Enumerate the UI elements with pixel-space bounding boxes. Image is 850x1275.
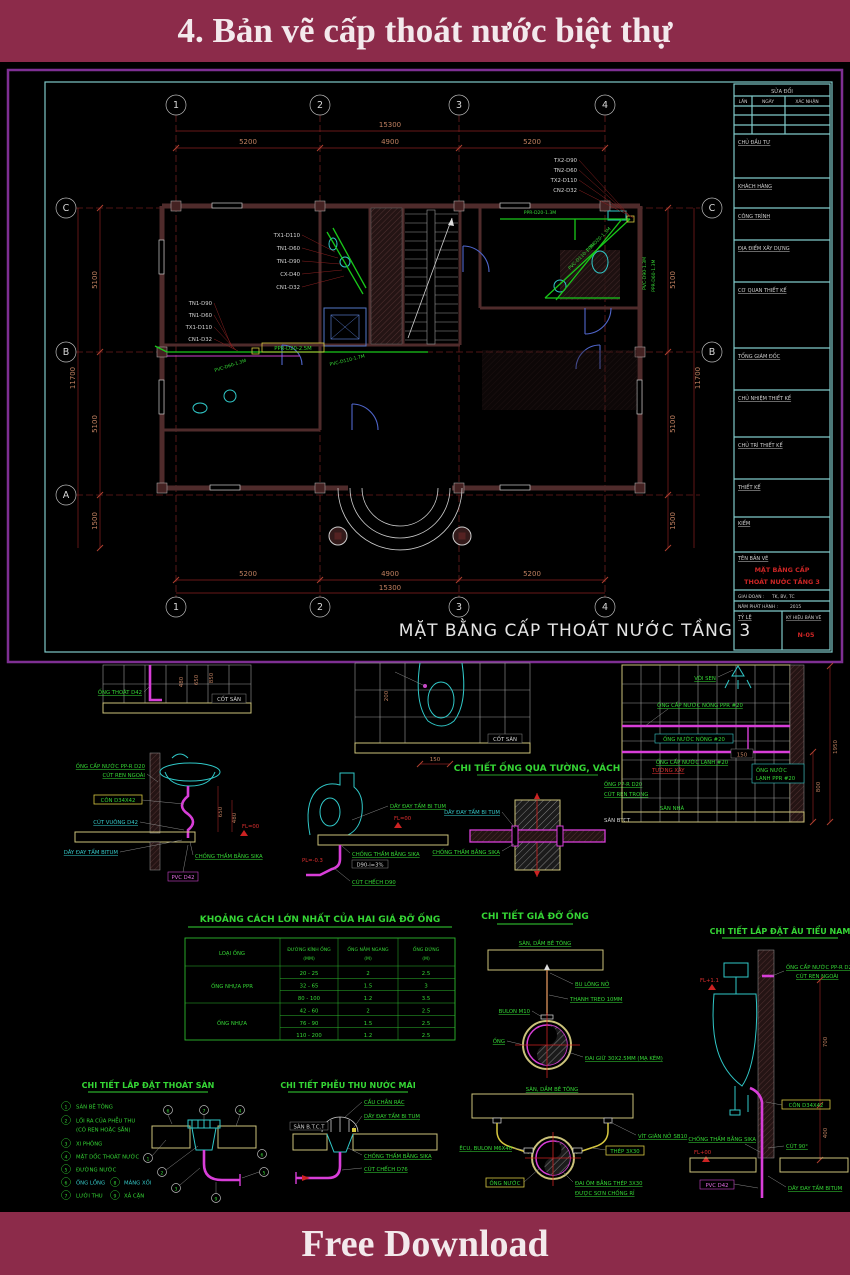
grid-label: B — [709, 347, 716, 358]
table-cell: 32 - 65 — [300, 984, 319, 990]
fitting-label: CÚT CHẾCH D76 — [364, 1165, 408, 1173]
callout-num: 9 — [215, 1197, 218, 1203]
titleblock-section: TỔNG GIÁM ĐỐC — [737, 352, 781, 360]
callout-num: 3 — [175, 1187, 178, 1193]
table-header: (MM) — [303, 956, 315, 962]
sika-label: CHỐNG THẤM BẰNG SIKA — [364, 1152, 432, 1160]
dim-label: 700 — [823, 1036, 829, 1047]
detail-title: CHI TIẾT LẮP ĐẶT ÂU TIỂU NAM — [710, 924, 850, 936]
pipe-label: CN1-D32 — [276, 285, 300, 291]
callout-num: 6 — [167, 1109, 170, 1115]
fitting-label: CÚT 90° — [786, 1143, 808, 1150]
pipe-label: ỐNG NƯỚC NÓNG #20 — [663, 735, 725, 743]
grid-label: 1 — [173, 602, 179, 613]
rope-label: DÂY ĐAY TẨM BI TUM — [390, 802, 446, 810]
detail-toilet-section: CỐT SÀN 200 150 — [355, 663, 530, 767]
fitting-label: CÚT CHẾCH D90 — [352, 878, 396, 886]
legend-num: 7 — [65, 1194, 68, 1200]
wall-label: TƯỜNG XÂY — [651, 767, 685, 774]
detail-title: CHI TIẾT LẮP ĐẶT THOÁT SÀN — [82, 1078, 215, 1090]
legend-label: LỐI RA CỦA PHỄU THU — [76, 1117, 135, 1125]
grid-bubble: 2 — [310, 95, 330, 115]
legend: 1 SÀN BÊ TÔNG 2 LỐI RA CỦA PHỄU THU (CÓ … — [62, 1102, 152, 1200]
detail-pipe-clamp: SÀN, DẦM BÊ TÔNG VÍT GIÃN NỞ SB10 ÊCU, B… — [459, 1085, 688, 1197]
table-cell: 3.5 — [422, 996, 430, 1002]
pipe-label: ỐNG NƯỚC — [490, 1179, 521, 1187]
table-cell: 42 - 60 — [300, 1009, 319, 1015]
table-cell: 76 - 90 — [300, 1021, 319, 1027]
grid-label: 2 — [317, 100, 323, 111]
plan-title: MẶT BẰNG CẤP THOÁT NƯỚC TẦNG 3 — [399, 617, 751, 641]
callout-num: 2 — [161, 1171, 164, 1177]
title-block: SỬA ĐỔI LẦN NGÀY XÁC NHẬN CHỦ ĐẦU TƯ KHÁ… — [734, 84, 830, 650]
dim-label: 150 — [737, 753, 748, 759]
legend-num: 6 — [65, 1181, 68, 1187]
legend-label: XI PHÔNG — [76, 1141, 102, 1148]
bath-hatch — [482, 350, 637, 410]
pipe-label: TX2-D90 — [553, 158, 578, 164]
table-cell: 2 — [366, 971, 369, 977]
dim-label: 5100 — [669, 415, 677, 433]
dim-label: 650 — [218, 806, 224, 817]
table-cell: 2.5 — [422, 971, 430, 977]
titleblock-section: ĐỊA ĐIỂM XÂY DỰNG — [738, 244, 790, 252]
rope-label: DÂY ĐAY TẨM BI TUM — [444, 808, 500, 816]
dim-label: 11700 — [694, 367, 702, 389]
titleblock-section: CHỦ TRÌ THIẾT KẾ — [738, 441, 783, 449]
pipe-label: PPR-D20-1.3M — [524, 210, 557, 216]
detail-title: CHI TIẾT PHỄU THU NƯỚC MÁI — [280, 1078, 415, 1090]
grid-label: 2 — [317, 602, 323, 613]
top-banner: 4. Bản vẽ cấp thoát nước biệt thự — [0, 0, 850, 62]
grid-bubble: 2 — [310, 597, 330, 617]
pipe-label: CN2-D32 — [553, 188, 577, 194]
detail-title: CHI TIẾT GIÁ ĐỠ ỐNG — [481, 909, 588, 922]
rope-label: DÂY ĐAY TẨM BI TUM — [364, 1112, 420, 1120]
legend-label: LƯỚI THU — [76, 1193, 103, 1200]
porch — [329, 488, 471, 550]
anchor-label: BU LÔNG NỞ — [575, 980, 610, 988]
detail-pipe-hanger: CHI TIẾT GIÁ ĐỠ ỐNG SÀN, DẦM BÊ TÔNG BU … — [481, 909, 663, 1078]
sika-label: CHỐNG THẤM BẰNG SIKA — [195, 852, 263, 860]
year-label: NĂM PHÁT HÀNH : — [738, 603, 778, 610]
titleblock-section: KIỂM — [738, 519, 750, 527]
table-cell: 2.5 — [422, 1009, 430, 1015]
level-label: FL+00 — [694, 1150, 712, 1156]
rope-label: DÂY ĐAY TẨM BITUM — [788, 1184, 843, 1192]
dim-label: 1950 — [833, 740, 839, 754]
dim-label: 480 — [179, 676, 185, 687]
floor-label: SÀN BTCT — [604, 817, 631, 824]
legend-label: (CÓ REN HOẶC SẴN) — [76, 1126, 130, 1134]
legend-label: MÁNG XỐI — [124, 1179, 152, 1187]
dim-label: 150 — [430, 757, 441, 763]
table-cell: 80 - 100 — [298, 996, 321, 1002]
grid-bubble: 3 — [449, 95, 469, 115]
level-label: FL+1.1 — [700, 978, 719, 984]
table-header: ỐNG NẰM NGANG — [347, 945, 389, 953]
dim-label: 850 — [209, 672, 215, 683]
level-label: PL=-0.3 — [302, 858, 323, 864]
dim-label: 5200 — [239, 138, 257, 146]
titleblock-section: CÔNG TRÌNH — [738, 213, 770, 220]
callout-num: 5 — [263, 1171, 266, 1177]
pipe-label: TN1-D90 — [188, 301, 213, 307]
titleblock-section: CHỦ ĐẦU TƯ — [738, 138, 770, 146]
drawing-name-label: TÊN BẢN VẼ — [737, 554, 768, 562]
legend-num: 4 — [65, 1155, 68, 1161]
pipe-label: TX1-D110 — [273, 233, 301, 239]
table-cell: 3 — [424, 984, 427, 990]
rod-label: THANH TREO 10MM — [569, 997, 623, 1003]
table-header: (M) — [422, 956, 430, 962]
sheet-frame — [8, 70, 842, 662]
table-cell: 1.2 — [364, 1033, 372, 1039]
detail-roof-funnel: CHI TIẾT PHỄU THU NƯỚC MÁI CẦU CHẮN RÁC … — [280, 1078, 437, 1184]
pipe-label-stack: TX2-D90 TN2-D60 TX2-D110 CN2-D32 — [550, 158, 634, 218]
titleblock-section: CƠ QUAN THIẾT KẾ — [738, 286, 787, 294]
dim-label: 800 — [816, 781, 822, 792]
page: 1 2 3 4 1 2 3 4 C B A C B 15300 5200 490… — [0, 0, 850, 1275]
table-cell: 2.5 — [422, 1033, 430, 1039]
pipe-label: ỐNG THOÁT D42 — [98, 688, 142, 696]
detail-pipe-section: ỐNG THOÁT D42 CỐT SÀN 480 650 850 — [98, 665, 251, 713]
grid-label: 3 — [456, 602, 462, 613]
pipe-label: TX1-D110 — [185, 325, 213, 331]
grid-label: 3 — [456, 100, 462, 111]
table-header: LOẠI ỐNG — [219, 949, 245, 957]
fitting-label: CÚT VUÔNG D42 — [93, 819, 138, 826]
drain-drawing: 6 7 4 1 2 3 6 5 9 — [144, 1106, 269, 1203]
floor-label: SÀN NHÀ — [660, 805, 685, 812]
level-label: FL=00 — [394, 816, 412, 822]
pipe-label: PVC-D60-1.3M — [214, 358, 247, 374]
legend-num: 3 — [65, 1142, 68, 1148]
titleblock-section: CHỦ NHIỆM THIẾT KẾ — [738, 394, 792, 402]
legend-num: 2 — [65, 1119, 68, 1125]
grid-bubble: 1 — [166, 597, 186, 617]
floor-label: CỐT SÀN — [493, 735, 517, 743]
dim-label: 5100 — [91, 415, 99, 433]
stage-label: GIAI ĐOẠN : — [738, 594, 764, 600]
callout-num: 6 — [261, 1153, 264, 1159]
revision-header: SỬA ĐỔI — [771, 87, 793, 95]
slab-label: SÀN, DẦM BÊ TÔNG — [526, 1085, 579, 1093]
callout-num: 7 — [203, 1109, 206, 1115]
supply-label: CÚT REN NGOÀI — [103, 772, 146, 779]
pipe-label: CX-D40 — [280, 272, 300, 278]
pipe-label: ỐNG CẤP NƯỚC LẠNH #20 — [656, 758, 729, 766]
pipe-label: TN1-D60 — [276, 246, 301, 252]
pvc-label: PVC D42 — [171, 875, 194, 881]
detail-title: CHI TIẾT ỐNG QUA TƯỜNG, VÁCH — [454, 761, 620, 774]
shaft — [371, 208, 402, 344]
steel-label: THÉP 3X30 — [609, 1147, 640, 1155]
bolt-label: BULON M10 — [499, 1009, 531, 1015]
detail-floor-drain: CHI TIẾT LẮP ĐẶT THOÁT SÀN 1 SÀN BÊ TÔNG… — [62, 1078, 269, 1203]
titleblock-section: KHÁCH HÀNG — [738, 183, 772, 190]
grid-label: B — [63, 347, 70, 358]
dim-label: 5100 — [91, 271, 99, 289]
detail-toilet-waste: DÂY ĐAY TẨM BI TUM FL=00 CHỐNG THẤM BẰNG… — [302, 767, 685, 886]
pipe-label: ỐNG NƯỚC — [756, 766, 787, 774]
grid-bubble: C — [702, 198, 722, 218]
strap-label: ĐAI GIỮ 30X2.5MM (MẠ KẼM) — [585, 1055, 663, 1062]
pipe-label: ỐNG PP-R D20 — [604, 780, 643, 788]
strainer-label: CẦU CHẮN RÁC — [364, 1098, 405, 1106]
table-header: (M) — [364, 956, 372, 962]
code-label: KÝ HIỆU BẢN VẼ — [786, 613, 821, 621]
grid-bubble: 4 — [595, 95, 615, 115]
sika-label: CHỐNG THẤM BẰNG SIKA — [688, 1135, 756, 1143]
drawing-name: MẶT BẰNG CẤP — [755, 564, 810, 574]
legend-num: 5 — [65, 1168, 68, 1174]
pipe-label: PVC-D90-1.3M — [642, 257, 648, 290]
dim-label: 15300 — [379, 121, 401, 129]
revision-col: XÁC NHẬN — [795, 98, 818, 105]
legend-label: ỐNG LỒNG — [76, 1178, 105, 1187]
legend-num: 1 — [65, 1105, 68, 1111]
floor-label: CỐT SÀN — [217, 695, 241, 703]
grid-label: C — [709, 203, 716, 214]
grid-bubble: B — [702, 342, 722, 362]
table-group: ỐNG NHỰA PPR — [211, 982, 253, 990]
legend-label: ĐƯỜNG NƯỚC — [76, 1167, 117, 1174]
pipe-label: ỐNG — [493, 1037, 505, 1045]
sika-label: CHỐNG THẤM BẰNG SIKA — [432, 848, 500, 856]
grid-label: A — [63, 490, 70, 501]
legend-num: 9 — [114, 1194, 117, 1200]
rope-label: DÂY ĐAY TẨM BITUM — [64, 848, 119, 856]
dim-label: 11700 — [69, 367, 77, 389]
legend-label: XẢ CẶN — [124, 1192, 144, 1200]
dim-label: 1500 — [669, 512, 677, 530]
strap-label: ĐƯỢC SƠN CHỐNG RỈ — [575, 1189, 635, 1197]
titleblock-section: THIẾT KẾ — [737, 483, 761, 491]
table-header: ĐƯỜNG KÍNH ỐNG — [287, 945, 331, 953]
supply-label: ỐNG CẤP NƯỚC PP-R D20 — [786, 963, 850, 971]
dim-label: 4900 — [381, 138, 399, 146]
level-label: FL=00 — [242, 824, 260, 830]
table-cell: 1.2 — [364, 996, 372, 1002]
detail-urinal: CHI TIẾT LẮP ĐẶT ÂU TIỂU NAM ỐNG CẤP NƯỚ… — [688, 924, 850, 1198]
drawing-name: THOÁT NƯỚC TẦNG 3 — [744, 576, 820, 586]
table-cell: 20 - 25 — [300, 971, 319, 977]
pipe-label: TN2-D60 — [553, 168, 578, 174]
pipe-label: ỐNG CẤP NƯỚC NÓNG PPR #20 — [657, 701, 743, 709]
pipe-label: LẠNH PPR #20 — [756, 776, 796, 782]
pipe-label: CN1-D32 — [188, 337, 212, 343]
callout-num: 4 — [239, 1109, 242, 1115]
fitting-label: CÔN D34X42 — [789, 1102, 824, 1109]
grid-bubble: 1 — [166, 95, 186, 115]
scale-label: TỶ LỆ — [737, 613, 752, 621]
sika-label: CHỐNG THẤM BẰNG SIKA — [352, 850, 420, 858]
shower-label: VÒI SEN — [694, 675, 716, 682]
stairs — [405, 210, 458, 344]
pipe-label: PVC-D110-1.7M — [329, 353, 365, 368]
dim-label: 200 — [384, 690, 390, 701]
slab-label: SÀN B.T.C.T — [294, 1124, 326, 1131]
dim-label: 400 — [823, 1127, 829, 1138]
grid-label: 4 — [602, 602, 608, 613]
floor-plan: TX1-D110 TN1-D60 TN1-D90 CX-D40 CN1-D32 … — [155, 158, 657, 550]
dim-label: 5200 — [523, 138, 541, 146]
detail-pipe-through-wall: CHI TIẾT ỐNG QUA TƯỜNG, VÁCH DÂY ĐAY TẨM… — [432, 761, 620, 877]
anchor-label: VÍT GIÃN NỞ SB10 — [638, 1132, 688, 1140]
detail-lavabo: ỐNG CẤP NƯỚC PP-R D20 CÚT REN NGOÀI CÔN … — [64, 753, 263, 881]
top-banner-title: 4. Bản vẽ cấp thoát nước biệt thự — [177, 11, 672, 51]
strap-label: ĐAI ÔM BẰNG THÉP 3X30 — [575, 1179, 643, 1187]
year-value: 2015 — [790, 604, 801, 610]
table-cell: 1.5 — [364, 1021, 372, 1027]
pvc-label: PVC D42 — [705, 1183, 728, 1189]
dim-label: 5200 — [523, 570, 541, 578]
dim-label: 5100 — [669, 271, 677, 289]
table-cell: 2 — [366, 1009, 369, 1015]
supply-label: CÚT REN NGOÀI — [796, 973, 839, 980]
table-header: ỐNG ĐỨNG — [413, 945, 440, 953]
pipe-label: TN1-D90 — [276, 259, 301, 265]
dim-label: 480 — [232, 812, 238, 823]
cad-canvas: 1 2 3 4 1 2 3 4 C B A C B 15300 5200 490… — [0, 0, 850, 1275]
table-cell: 2.5 — [422, 1021, 430, 1027]
grid-bubble: B — [56, 342, 76, 362]
grid-bubble: 3 — [449, 597, 469, 617]
dim-label: 1500 — [91, 512, 99, 530]
supply-label: ỐNG CẤP NƯỚC PP-R D20 — [76, 762, 146, 770]
revision-col: NGÀY — [762, 98, 774, 105]
dim-label: 650 — [194, 674, 200, 685]
grid-label: C — [63, 203, 70, 214]
legend-label: SÀN BÊ TÔNG — [76, 1103, 113, 1111]
legend-label: MẶT DỐC THOÁT NƯỚC — [76, 1153, 140, 1161]
callout-num: 1 — [147, 1157, 150, 1163]
pipe-label: TN1-D60 — [188, 313, 213, 319]
elevator — [324, 308, 366, 346]
bottom-banner: Free Download — [0, 1212, 850, 1275]
legend-num: 8 — [114, 1181, 117, 1187]
bottom-banner-title: Free Download — [301, 1222, 548, 1266]
grid-bubble: A — [56, 485, 76, 505]
stage-value: TK, BV, TC — [771, 594, 795, 600]
nut-label: ÊCU, BULON M6X40 — [459, 1144, 512, 1152]
support-table: KHOẢNG CÁCH LỚN NHẤT CỦA HAI GIÁ ĐỠ ỐNG … — [185, 912, 455, 1040]
dim-label: 4900 — [381, 570, 399, 578]
pipe-label: TX2-D110 — [550, 178, 578, 184]
slab-label: SÀN, DẦM BÊ TÔNG — [519, 939, 572, 947]
table-cell: 1.5 — [364, 984, 372, 990]
drawing-code: N-05 — [798, 631, 815, 639]
fitting-label: CÔN D34X42 — [101, 797, 136, 804]
grid-bubble: C — [56, 198, 76, 218]
thread-label: CÚT REN TRONG — [604, 791, 648, 798]
table-cell: 110 - 200 — [296, 1033, 322, 1039]
grid-bubble: 4 — [595, 597, 615, 617]
dim-label: 5200 — [239, 570, 257, 578]
table-group: ỐNG NHỰA — [217, 1019, 247, 1027]
pipe-label: PPR-D60-1.3M — [651, 259, 657, 292]
revision-col: LẦN — [739, 97, 748, 105]
pipe-label: PPR-D20-2.5M — [274, 346, 312, 352]
slope-label: D90-i=3% — [356, 863, 383, 869]
table-title: KHOẢNG CÁCH LỚN NHẤT CỦA HAI GIÁ ĐỠ ỐNG — [200, 912, 441, 925]
dim-label: 15300 — [379, 584, 401, 592]
grid-label: 4 — [602, 100, 608, 111]
detail-shower-wall: VÒI SEN ỐNG CẤP NƯỚC NÓNG PPR #20 ỐNG NƯ… — [622, 663, 839, 825]
grid-label: 1 — [173, 100, 179, 111]
